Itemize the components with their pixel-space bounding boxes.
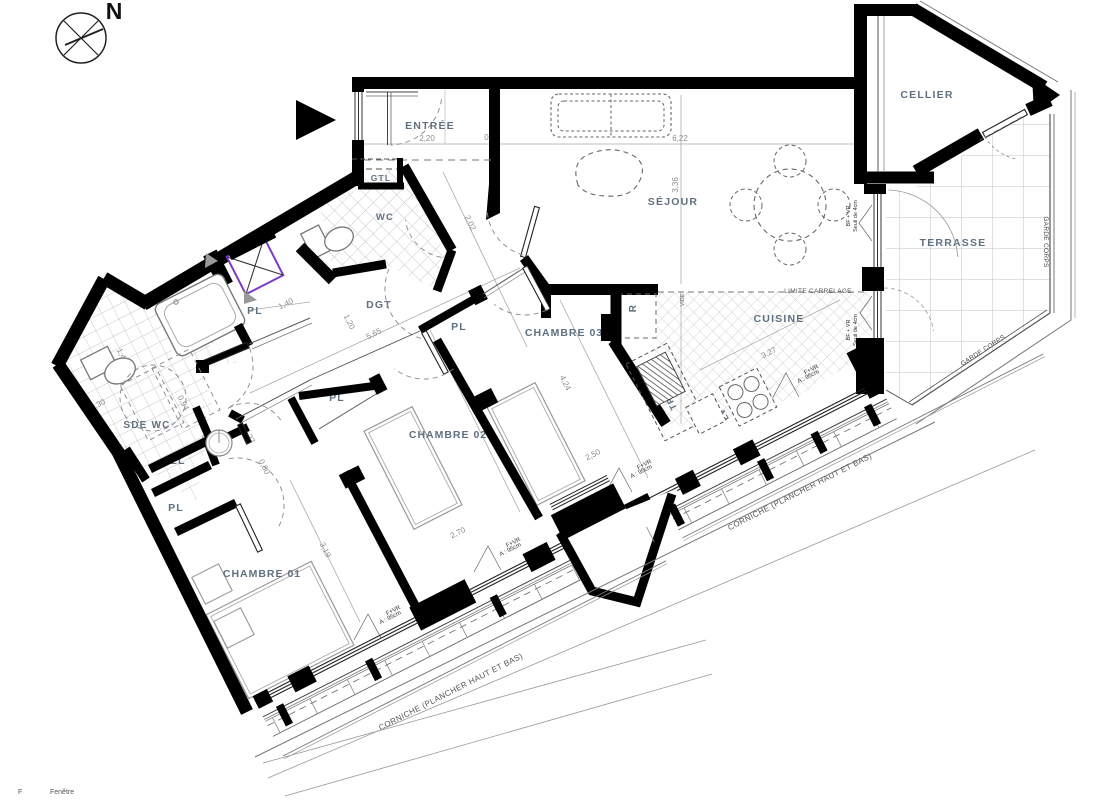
svg-text:F: F [18,789,22,796]
svg-text:R: R [628,304,639,312]
svg-text:BF + VR: BF + VR [846,320,852,341]
svg-text:PL: PL [247,305,263,317]
svg-text:TERRASSE: TERRASSE [920,237,987,249]
svg-text:BF + VR: BF + VR [846,206,852,227]
svg-text:PL: PL [451,321,467,333]
svg-text:CHAMBRE 02: CHAMBRE 02 [409,429,487,441]
svg-text:Fenêtre: Fenêtre [50,789,74,796]
svg-text:CHAMBRE 01: CHAMBRE 01 [223,568,301,580]
svg-text:CHAMBRE 03: CHAMBRE 03 [525,327,603,339]
svg-text:PL: PL [168,502,184,514]
svg-text:CUISINE: CUISINE [754,313,805,325]
svg-text:3,36: 3,36 [671,177,680,193]
svg-text:2,20: 2,20 [419,134,435,143]
svg-text:GARDE CORPS: GARDE CORPS [1042,216,1049,268]
svg-text:CELLIER: CELLIER [900,89,953,101]
svg-text:SÉJOUR: SÉJOUR [648,195,698,208]
svg-text:N: N [106,0,123,24]
svg-text:VIDE: VIDE [680,293,686,306]
svg-text:6,22: 6,22 [672,134,688,143]
svg-text:WC: WC [376,212,394,223]
svg-text:DGT: DGT [366,299,392,311]
svg-text:Seuil de 4cm: Seuil de 4cm [853,200,859,232]
svg-text:GTL: GTL [371,173,392,183]
